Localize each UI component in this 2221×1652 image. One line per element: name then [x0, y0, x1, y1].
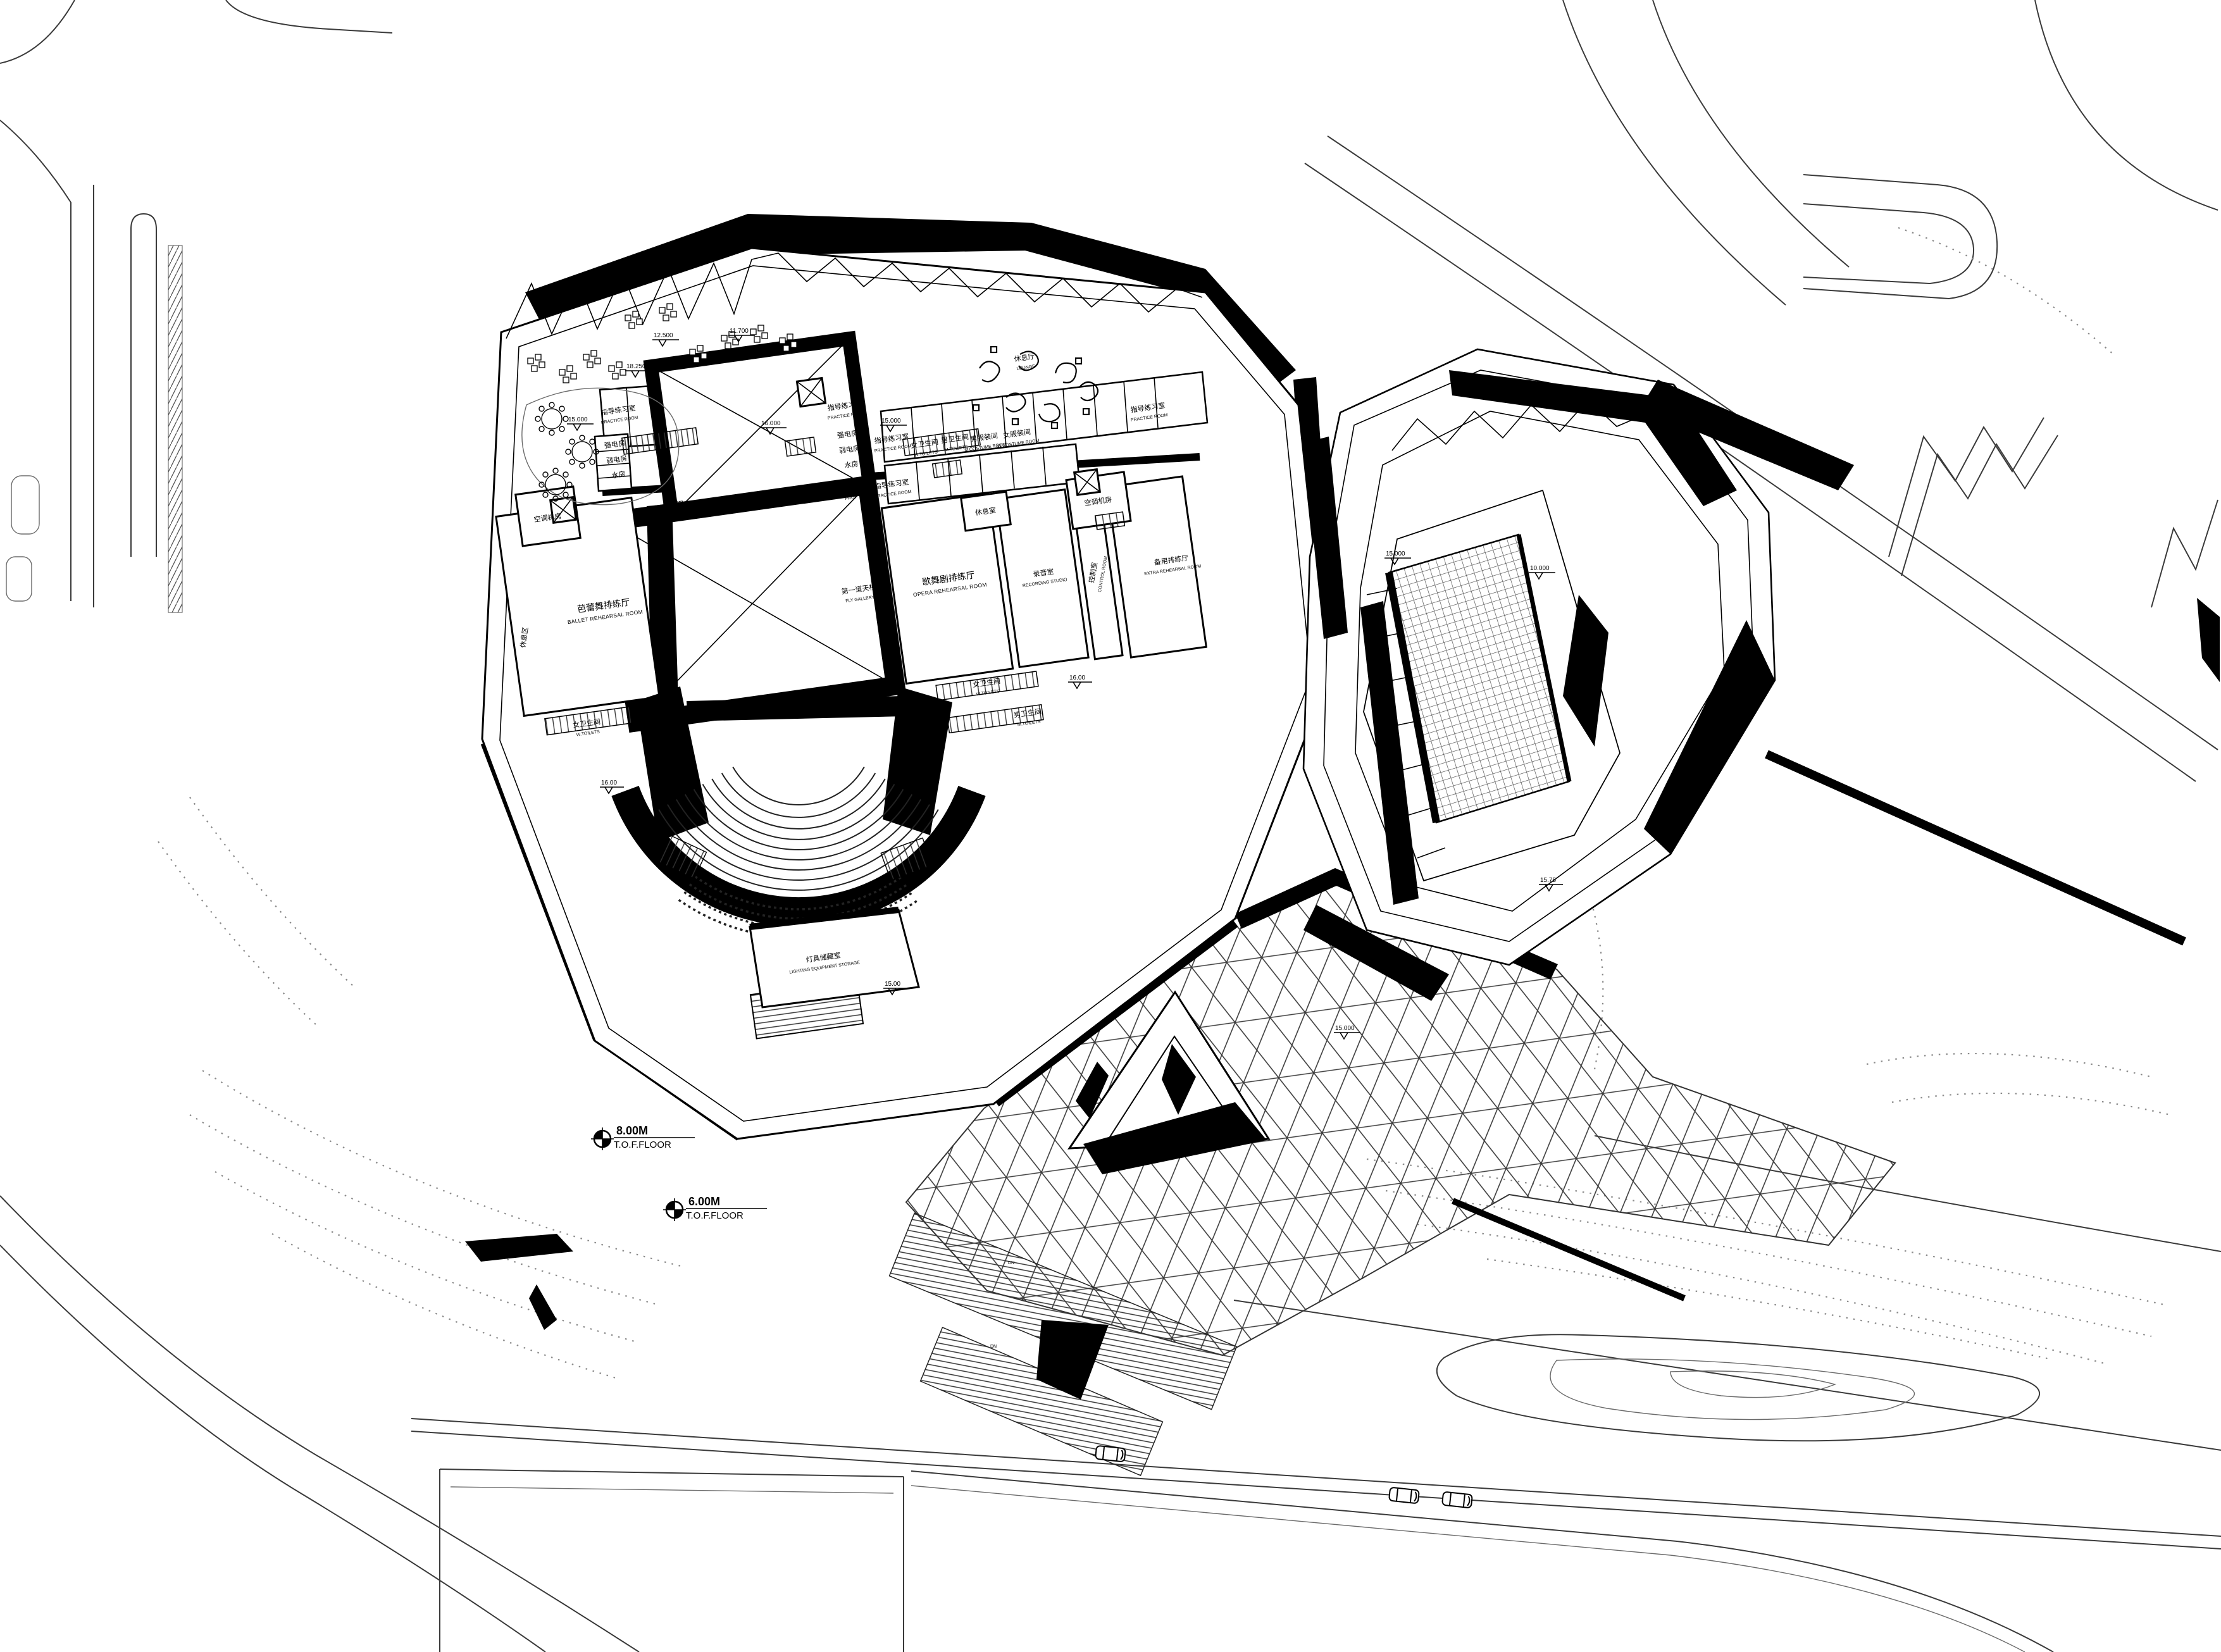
building-second-hall [1303, 349, 1854, 1001]
svg-text:15.000: 15.000 [568, 416, 588, 423]
road-shadow-east [1767, 754, 2184, 941]
down-label: DN [990, 1345, 997, 1349]
svg-text:15.000: 15.000 [881, 418, 901, 425]
svg-text:18.250: 18.250 [626, 363, 646, 370]
floor-marker-8m: 8.00M T.O.F.FLOOR [591, 1124, 695, 1150]
svg-text:15.000: 15.000 [1335, 1025, 1355, 1032]
svg-text:6.00M: 6.00M [688, 1195, 720, 1208]
cars [1095, 1446, 1472, 1508]
svg-text:12.500: 12.500 [654, 332, 673, 339]
svg-text:11.700: 11.700 [730, 328, 749, 335]
svg-text:15.00: 15.00 [885, 981, 900, 988]
svg-text:T.O.F.FLOOR: T.O.F.FLOOR [614, 1140, 671, 1150]
svg-text:16.00: 16.00 [601, 779, 617, 786]
svg-text:15.75: 15.75 [1540, 877, 1556, 884]
car [1095, 1446, 1126, 1462]
site-plan-drawing: DN DN [0, 0, 2221, 1652]
down-label: DN [1008, 1261, 1014, 1265]
svg-text:8.00M: 8.00M [616, 1124, 648, 1137]
svg-text:16.000: 16.000 [761, 420, 781, 427]
survey-crosshair-icon [591, 1127, 614, 1150]
svg-text:15.000: 15.000 [1386, 550, 1405, 557]
svg-text:10.000: 10.000 [1530, 565, 1550, 572]
svg-text:16.00: 16.00 [1069, 674, 1085, 681]
zigzag-ramps [1889, 418, 2218, 607]
svg-text:T.O.F.FLOOR: T.O.F.FLOOR [686, 1210, 743, 1221]
car [1389, 1487, 1419, 1504]
car [1442, 1492, 1472, 1508]
survey-crosshair-icon [663, 1198, 686, 1221]
floor-marker-6m: 6.00M T.O.F.FLOOR [663, 1195, 767, 1221]
